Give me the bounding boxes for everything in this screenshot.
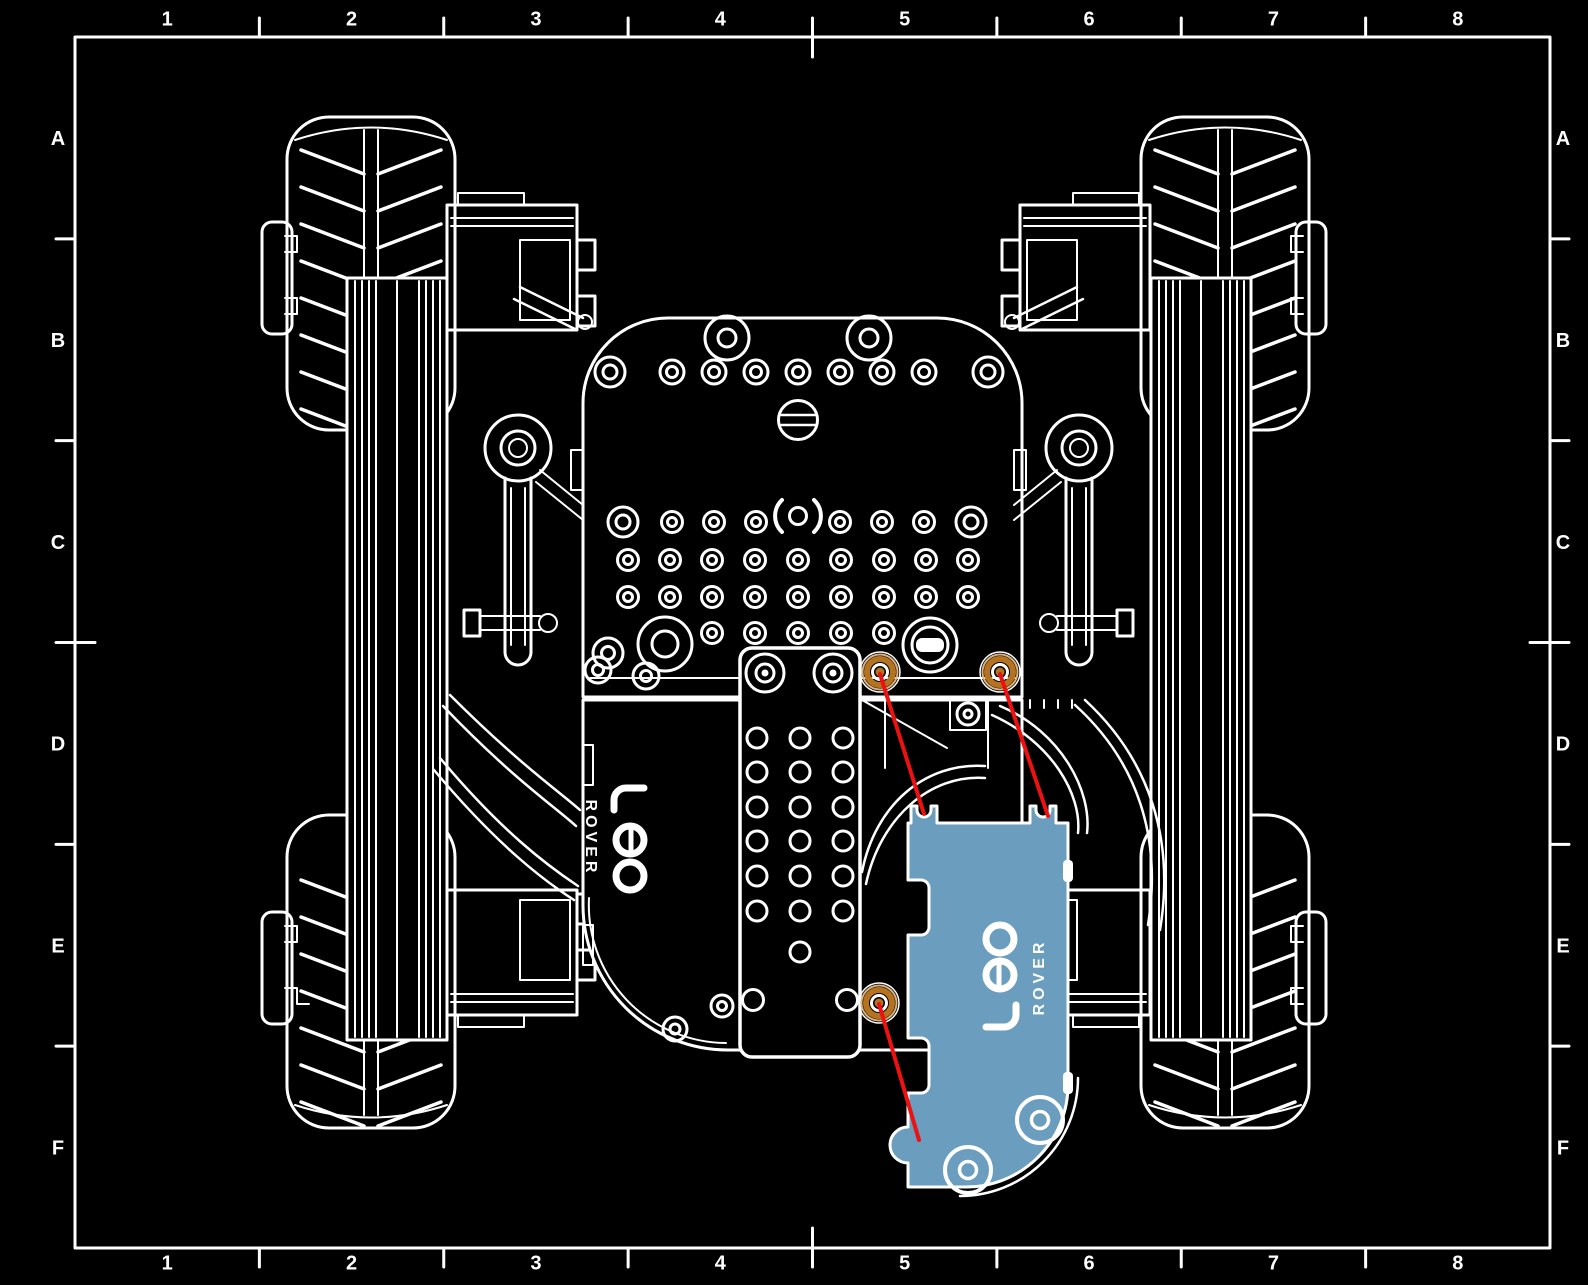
grid-row-label: F: [1557, 1137, 1569, 1159]
connector-pins: [1030, 700, 1072, 708]
cover-edge-slot: [1063, 860, 1073, 882]
grid-column-label: 7: [1268, 1252, 1279, 1274]
plate-side-tab: [571, 450, 583, 490]
cover-edge-slot: [1063, 1072, 1073, 1094]
grid-row-label: F: [52, 1137, 64, 1159]
grid-row-label: D: [1556, 734, 1570, 756]
grid-column-label: 8: [1452, 8, 1463, 30]
grid-column-label: 4: [715, 8, 727, 30]
drive-assembly-front-left: [447, 193, 595, 330]
grid-column-label: 3: [530, 1252, 541, 1274]
grid-column-label: 2: [346, 8, 357, 30]
grid-row-label: A: [1556, 128, 1570, 150]
drive-assembly-rear-left: [447, 890, 595, 1027]
grid-column-label: 2: [346, 1252, 357, 1274]
grid-column-label: 8: [1452, 1252, 1463, 1274]
grid-column-label: 6: [1084, 1252, 1095, 1274]
grid-column-label: 5: [899, 8, 910, 30]
grid-row-label: B: [1556, 330, 1570, 352]
grid-column-label: 1: [162, 1252, 173, 1274]
drive-assembly-front-right: [1002, 193, 1150, 330]
grid-row-label: E: [51, 936, 64, 958]
suspension-arm-left: [464, 415, 583, 665]
grid-row-label: E: [1556, 936, 1569, 958]
grid-row-label: C: [51, 532, 65, 554]
grid-row-label: A: [51, 128, 65, 150]
grid-column-label: 6: [1084, 8, 1095, 30]
grid-row-label: B: [51, 330, 65, 352]
shaft-coupler: [903, 618, 957, 672]
grid-column-label: 3: [530, 8, 541, 30]
grid-column-label: 7: [1268, 8, 1279, 30]
grid-row-label: C: [1556, 532, 1570, 554]
grid-column-label: 5: [899, 1252, 910, 1274]
rover-wordmark: ROVER: [582, 800, 599, 877]
technical-drawing: ROVER: [0, 0, 1588, 1285]
grid-column-label: 4: [715, 1252, 727, 1274]
battery-plate: [740, 648, 860, 1057]
rover-wordmark: ROVER: [1031, 939, 1048, 1016]
suspension-arm-right: [1014, 415, 1133, 665]
grid-column-label: 1: [162, 8, 173, 30]
grid-row-label: D: [51, 734, 65, 756]
